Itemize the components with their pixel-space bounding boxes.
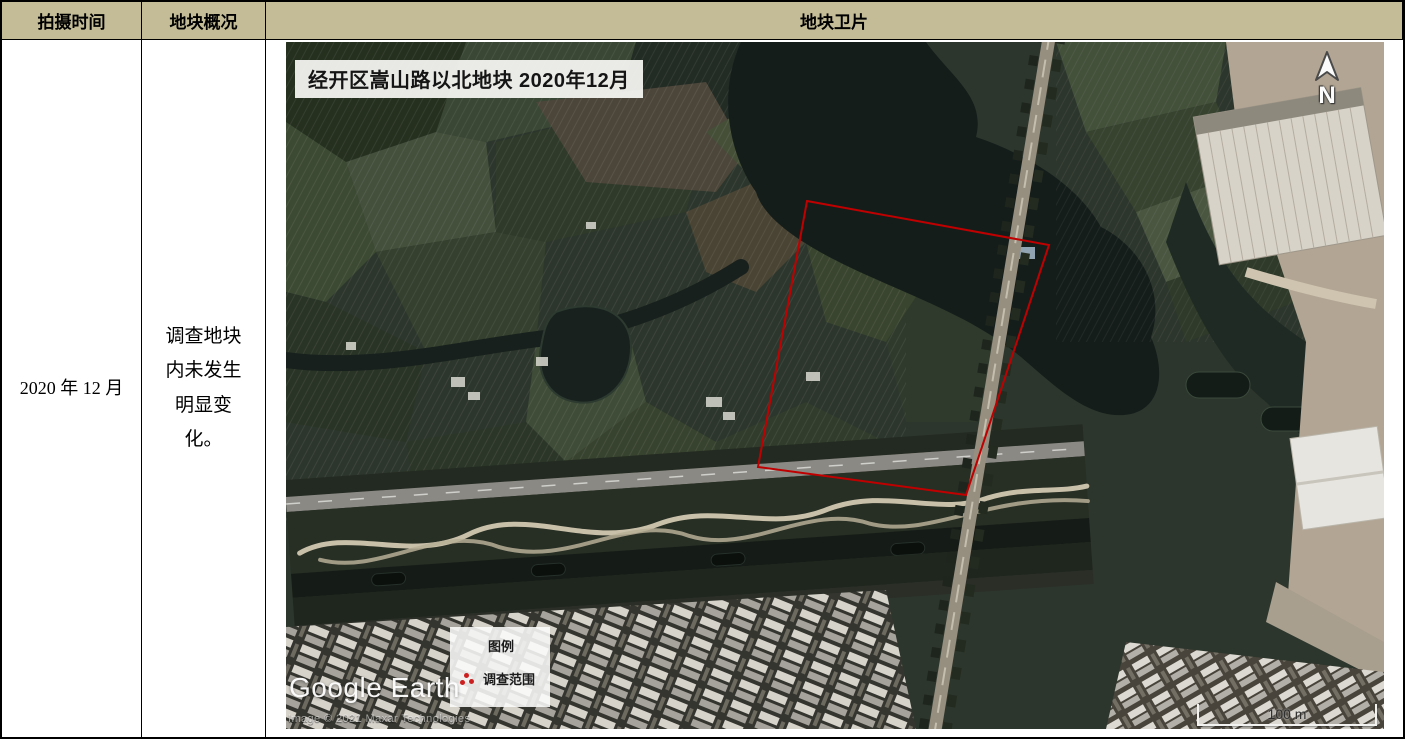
map-legend: 图例 调查范围 [450,627,550,707]
legend-title: 图例 [460,636,542,655]
imagery-copyright: Image © 2021 Maxar Technologies [288,713,470,725]
survey-polygon [758,201,1049,495]
survey-range-icon [460,673,474,685]
header-plot-satellite-label: 地块卫片 [800,8,868,33]
map-title: 经开区嵩山路以北地块 2020年12月 [295,60,643,98]
cell-satellite-image: 经开区嵩山路以北地块 2020年12月 N 图例 调查范围 Google Ear… [266,40,1403,737]
scale-bar: 100 m [1197,704,1377,726]
north-arrow-label: N [1304,82,1350,110]
satellite-survey-table: 拍摄时间 地块概况 地块卫片 2020 年 12 月 调查地块内未发生明显变化。 [0,0,1405,739]
header-plot-overview-label: 地块概况 [170,8,238,33]
legend-item-label: 调查范围 [483,669,535,688]
survey-polygon-overlay [286,42,1384,729]
header-plot-satellite: 地块卫片 [266,2,1403,40]
google-earth-watermark: Google Earth [289,672,460,704]
header-capture-time: 拍摄时间 [2,2,142,40]
satellite-image: 经开区嵩山路以北地块 2020年12月 N 图例 调查范围 Google Ear… [286,42,1384,729]
north-arrow-icon [1310,50,1344,86]
north-arrow: N [1304,50,1350,110]
header-plot-overview: 地块概况 [142,2,266,40]
legend-item-survey-range: 调查范围 [460,669,542,688]
capture-time-value: 2020 年 12 月 [20,372,124,404]
header-capture-time-label: 拍摄时间 [38,8,106,33]
scale-bar-label: 100 m [1268,706,1307,723]
cell-capture-time: 2020 年 12 月 [2,40,142,737]
cell-plot-overview: 调查地块内未发生明显变化。 [142,40,266,737]
plot-overview-value: 调查地块内未发生明显变化。 [163,320,244,457]
